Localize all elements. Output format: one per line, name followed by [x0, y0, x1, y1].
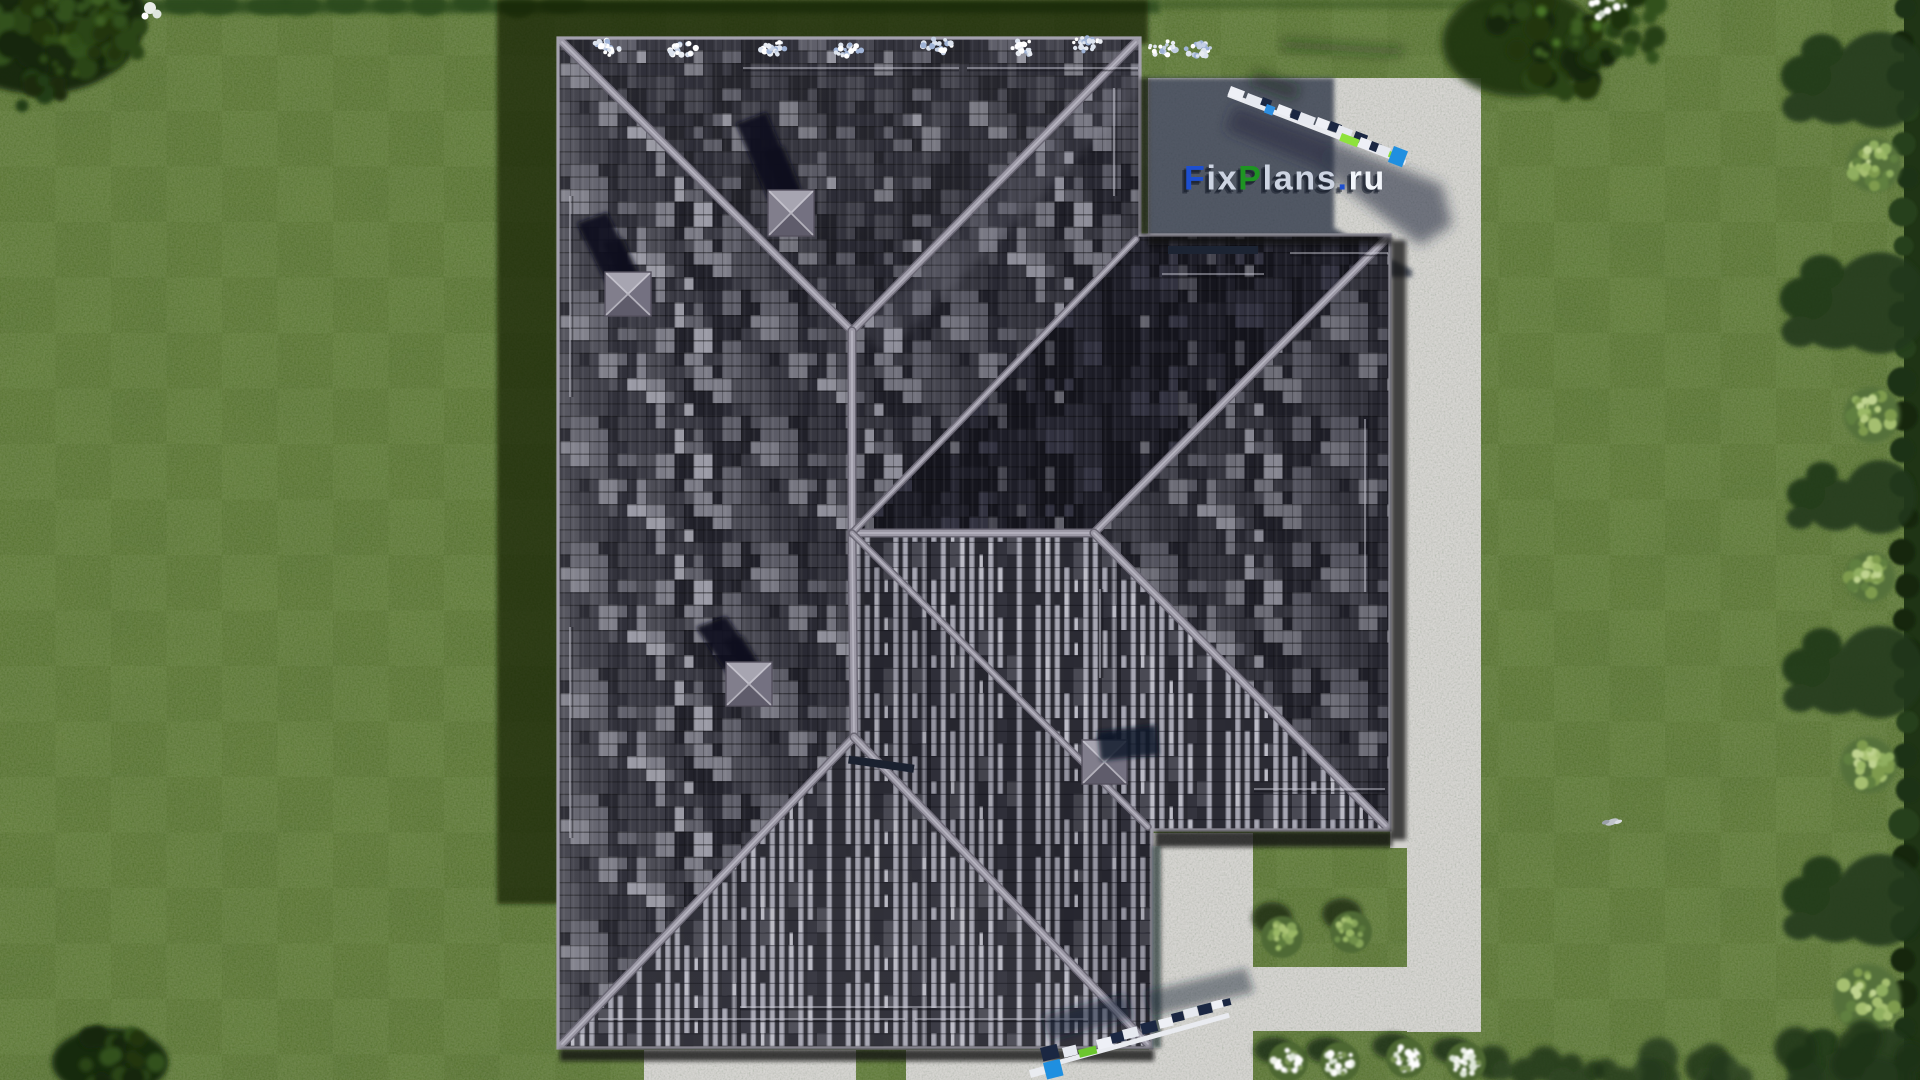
svg-text:FixPlans.ru: FixPlans.ru — [1184, 160, 1386, 198]
